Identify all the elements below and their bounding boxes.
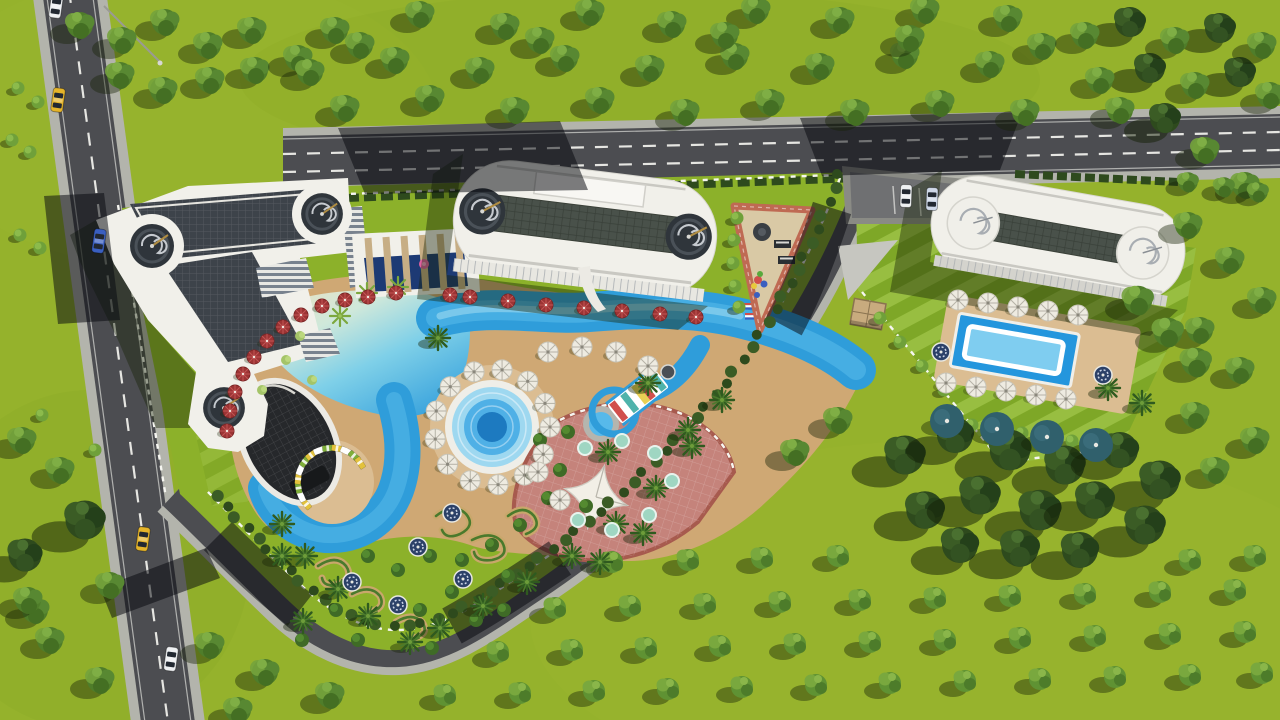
hedge-shrub [794, 264, 806, 276]
mosaic-ornament [443, 504, 461, 522]
hedge-shrub [292, 575, 304, 587]
hedge-shrub [254, 533, 266, 545]
garden-bush [351, 633, 365, 647]
garden-bush [413, 603, 427, 617]
site-plan-canvas [0, 0, 1280, 720]
mint-bush [665, 474, 679, 488]
hedge-shrub [831, 182, 843, 194]
beach-tuft [281, 355, 291, 365]
garden-bush [391, 563, 405, 577]
car [900, 184, 912, 207]
hedge-shrub [788, 278, 798, 288]
mint-bush [571, 513, 585, 527]
hedge-shrub [774, 290, 786, 302]
mosaic-ornament [409, 538, 427, 556]
garden-bush [579, 499, 593, 513]
hedge-shrub [596, 507, 606, 517]
hedge-shrub [807, 237, 819, 249]
hedge-shrub [814, 210, 826, 222]
beach-tuft [295, 331, 305, 341]
hedge-shrub [773, 304, 783, 314]
hedge-shrub [629, 476, 641, 488]
hedge-shrub [228, 511, 240, 523]
hedge-shrub [560, 534, 572, 546]
hedge-shrub [415, 618, 425, 628]
picnic-table [774, 240, 791, 248]
hedge-shrub [390, 621, 400, 631]
beach-tuft [307, 375, 317, 385]
roof-spiral-tower [301, 193, 343, 235]
hedge-shrub [260, 544, 270, 554]
roof-spiral-tower [130, 224, 174, 268]
garden-bush [513, 518, 527, 532]
garden-bush [329, 603, 343, 617]
garden-bush [361, 549, 375, 563]
hedge-shrub [796, 252, 806, 262]
hedge-shrub [662, 446, 672, 456]
garden-bush [455, 553, 469, 567]
car [926, 187, 938, 210]
beach-tuft [257, 385, 267, 395]
hedge-shrub [619, 487, 629, 497]
aerial-render [0, 0, 1280, 720]
hedge-shrub [549, 544, 559, 554]
hedge-shrub [448, 608, 458, 618]
light-palm [330, 306, 350, 326]
hedge-shrub [692, 412, 704, 424]
hedge-shrub [223, 502, 233, 512]
garden-bush [553, 463, 567, 477]
hedge-shrub [752, 330, 762, 340]
garden-bush [501, 569, 515, 583]
garden-bush [295, 633, 309, 647]
mosaic-ornament [932, 343, 950, 361]
hedge-shrub [814, 224, 824, 234]
garden-bush [445, 585, 459, 599]
mosaic-ornament [343, 573, 361, 591]
mosaic-ornament [454, 570, 472, 588]
garden-bush [497, 603, 511, 617]
hedge-shrub [747, 341, 759, 353]
garden-bush [561, 425, 575, 439]
slide-platform [661, 365, 675, 379]
hedge-shrub [602, 496, 614, 508]
mint-bush [578, 441, 592, 455]
hedge-shrub [212, 490, 224, 502]
mint-bush [648, 446, 662, 460]
hedge-shrub [832, 169, 842, 179]
mosaic-ornament [1094, 366, 1112, 384]
mint-bush [642, 508, 656, 522]
hedge-shrub [826, 197, 836, 207]
hedge-shrub [740, 354, 750, 364]
mint-bush [605, 523, 619, 537]
garden-bush [425, 641, 439, 655]
hedge-shrub [309, 586, 319, 596]
hedge-shrub [244, 523, 254, 533]
hedge-shrub [725, 366, 737, 378]
mosaic-ornament [389, 596, 407, 614]
hedge-shrub [486, 585, 498, 597]
mint-bush [615, 434, 629, 448]
hedge-shrub [636, 467, 646, 477]
garden-bush [485, 538, 499, 552]
hedge-shrub [531, 552, 543, 564]
hedge-shrub [722, 379, 732, 389]
hedge-shrub [764, 316, 776, 328]
